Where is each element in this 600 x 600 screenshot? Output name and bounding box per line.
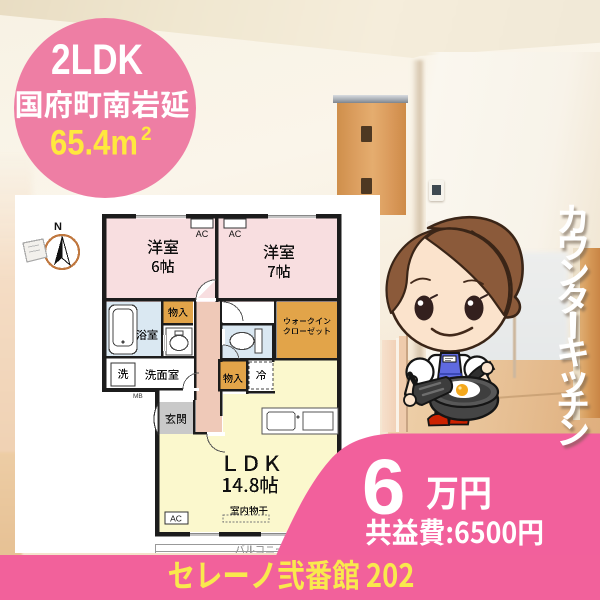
svg-text:AC: AC [229, 229, 242, 239]
svg-text:N: N [54, 221, 62, 233]
svg-text:2: 2 [141, 124, 152, 145]
svg-text:AC: AC [170, 514, 182, 524]
svg-text:65.4m: 65.4m [50, 124, 138, 163]
svg-text:6: 6 [362, 443, 405, 531]
svg-text:AC: AC [196, 229, 209, 239]
svg-text:MB: MB [133, 393, 143, 400]
svg-text:2LDK: 2LDK [51, 36, 143, 84]
